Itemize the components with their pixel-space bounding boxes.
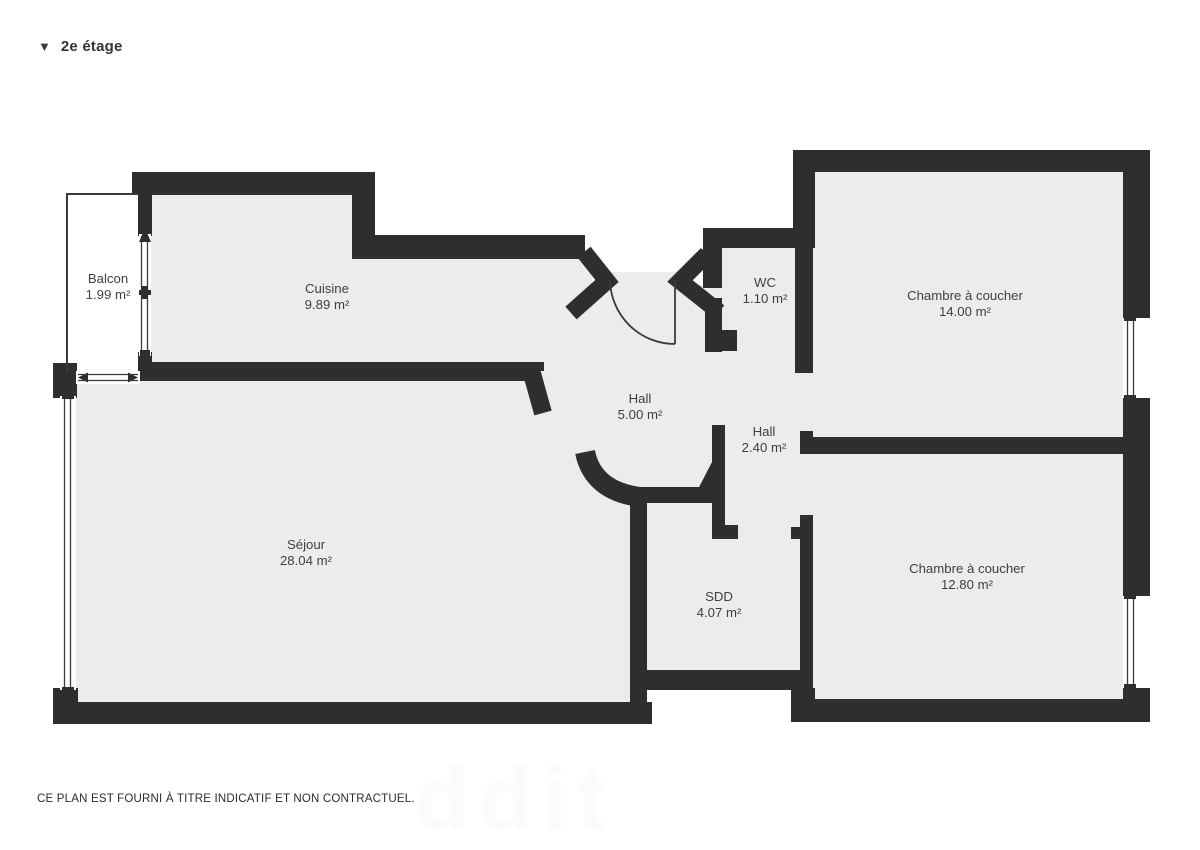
room-area-chambre-1: 14.00 m² (939, 304, 992, 319)
wall-segment (138, 362, 530, 381)
wall-segment (53, 702, 652, 724)
room-area-wc: 1.10 m² (743, 291, 788, 306)
room-area-sejour: 28.04 m² (280, 553, 333, 568)
window-tick (140, 350, 150, 356)
floor-sejour (60, 372, 637, 712)
wall-segment (793, 150, 1150, 172)
window-tick (1124, 684, 1136, 690)
wall-segment (1123, 163, 1150, 318)
sdd-door-stub (791, 527, 800, 539)
wall-segment (800, 437, 1125, 454)
watermark: ddit (415, 748, 775, 843)
room-area-balcon: 1.99 m² (86, 287, 131, 302)
room-area-chambre-2: 12.80 m² (941, 577, 994, 592)
wall-segment (806, 699, 1150, 722)
wall-segment (712, 425, 725, 537)
wall-segment (132, 172, 375, 195)
room-label-sejour: Séjour (287, 537, 326, 552)
plan-disclaimer: CE PLAN EST FOURNI À TITRE INDICATIF ET … (37, 793, 415, 805)
room-area-cuisine: 9.89 m² (305, 297, 350, 312)
room-label-hall-2: Hall (753, 424, 776, 439)
room-area-sdd: 4.07 m² (697, 605, 742, 620)
window-tick (62, 393, 74, 399)
room-label-hall-1: Hall (629, 391, 652, 406)
window-tick (1124, 395, 1136, 401)
window-tick (62, 687, 74, 693)
room-area-hall-2: 2.40 m² (742, 440, 787, 455)
room-label-chambre-1: Chambre à coucher (907, 288, 1023, 303)
room-label-balcon: Balcon (88, 271, 128, 286)
wall-segment (53, 688, 78, 724)
floor-plan: Balcon 1.99 m² Cuisine 9.89 m² WC 1.10 m… (0, 0, 1200, 848)
window-tick (1124, 593, 1136, 599)
room-label-cuisine: Cuisine (305, 281, 349, 296)
wall-segment (352, 235, 585, 259)
window-tick (1124, 315, 1136, 321)
sdd-door-stub (712, 525, 738, 539)
room-area-hall-1: 5.00 m² (618, 407, 663, 422)
wall-segment (632, 670, 810, 690)
wall-segment (1123, 398, 1150, 596)
room-label-chambre-2: Chambre à coucher (909, 561, 1025, 576)
wc-door-stub (716, 330, 737, 351)
window-tick (142, 286, 148, 299)
wall-segment (795, 248, 813, 373)
room-label-sdd: SDD (705, 589, 733, 604)
wall-segment (53, 363, 77, 398)
sejour-opening-jamb (531, 370, 543, 413)
room-label-wc: WC (754, 275, 776, 290)
window (60, 396, 76, 690)
